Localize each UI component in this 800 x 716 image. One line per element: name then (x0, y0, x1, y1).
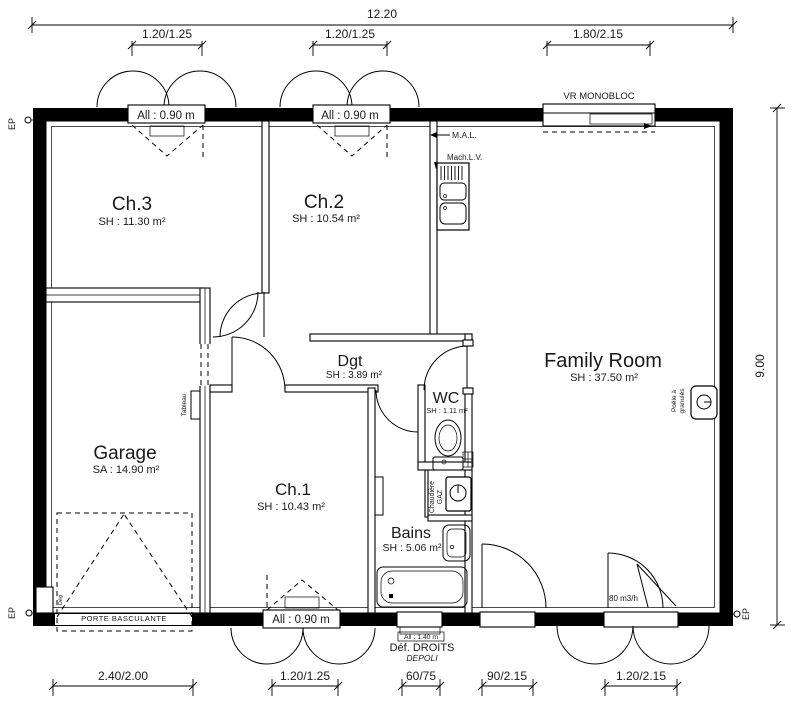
window-family-room: 80 m3/h (557, 553, 709, 664)
bains-glazing-2: DEPOLI (406, 653, 438, 663)
garage-door-label: PORTE BASCULANTE (81, 614, 167, 623)
dim-bottom-3: 60/75 (406, 669, 436, 683)
stove-label-2: granulés (679, 388, 686, 414)
electrical-panel: Tableau (181, 391, 200, 419)
dim-right-height: 9.00 (753, 354, 767, 378)
dim-bottom-1: 2.40/2.00 (98, 669, 148, 683)
floor-plan-drawing: All : 0.90 m All : 0.90 m VR MONOBLOC M.… (0, 0, 800, 716)
vr-monobloc-label: VR MONOBLOC (563, 91, 634, 102)
dim-window-1: 1.20/1.25 (142, 27, 192, 41)
room-garage-area: SA : 14.90 m² (93, 464, 160, 476)
room-wc-name: WC (433, 390, 460, 407)
room-bains-area: SH : 5.06 m² (383, 542, 442, 554)
room-labels: Ch.3 SH : 11.30 m² Ch.2 SH : 10.54 m² Fa… (93, 192, 662, 554)
room-family-area: SH : 37.50 m² (570, 372, 638, 384)
door-bains (376, 390, 418, 432)
airflow-label: 80 m3/h (609, 594, 638, 603)
door-wc (424, 340, 473, 394)
sink-drainer-icon (441, 166, 462, 180)
room-family-name: Family Room (544, 350, 662, 372)
room-ch1-name: Ch.1 (275, 480, 311, 499)
room-ch1-area: SH : 10.43 m² (257, 501, 325, 513)
room-dgt-area: SH : 3.89 m² (326, 370, 383, 381)
ep-label: EP (7, 118, 17, 130)
radiator (375, 477, 383, 515)
deg-label: Dég (58, 595, 64, 605)
door-ch3 (213, 292, 258, 337)
ep-label: EP (7, 607, 17, 619)
boiler-label-1: Chaudière (429, 481, 436, 513)
bains-window-height: All : 1.40 m (404, 634, 438, 641)
kitchen-fixtures: M.A.L. Mach.L.V. (430, 130, 482, 230)
dim-bottom-4: 90/2.15 (487, 669, 527, 683)
tableau-label: Tableau (181, 393, 188, 416)
stove-label-1: Poêle à (671, 390, 678, 412)
room-ch3-area: SH : 11.30 m² (98, 216, 165, 228)
dim-top-total: 12.20 (367, 7, 397, 21)
room-ch2-name: Ch.2 (304, 192, 344, 213)
pellet-stove: Poêle à granulés (671, 386, 717, 419)
window-vr-monobloc: VR MONOBLOC (543, 91, 655, 132)
mal-label: M.A.L. (452, 130, 477, 140)
room-ch3-name: Ch.3 (112, 194, 152, 215)
floor-plan: All : 0.90 m All : 0.90 m VR MONOBLOC M.… (0, 0, 800, 716)
bathtub-icon (377, 567, 467, 607)
room-ch2-area: SH : 10.54 m² (292, 213, 360, 225)
boiler-label-2: GAZ (437, 489, 444, 504)
window-label: All : 0.90 m (272, 614, 330, 626)
boiler: Chaudière GAZ (429, 477, 471, 513)
room-wc-area: SH : 1.11 m² (426, 406, 468, 415)
window-label: All : 0.90 m (137, 110, 195, 122)
dim-window-3: 1.80/2.15 (573, 27, 623, 41)
room-garage-name: Garage (93, 443, 156, 464)
dim-bottom-2: 1.20/1.25 (280, 669, 330, 683)
door-ch1 (232, 337, 285, 390)
window-label: All : 0.90 m (321, 110, 379, 122)
machlv-label: Mach.L.V. (447, 153, 482, 162)
room-dgt-name: Dgt (338, 353, 363, 370)
dim-window-2: 1.20/1.25 (325, 27, 375, 41)
ep-label: EP (741, 608, 751, 620)
dim-bottom-5: 1.20/2.15 (616, 669, 666, 683)
room-bains-name: Bains (391, 525, 431, 542)
